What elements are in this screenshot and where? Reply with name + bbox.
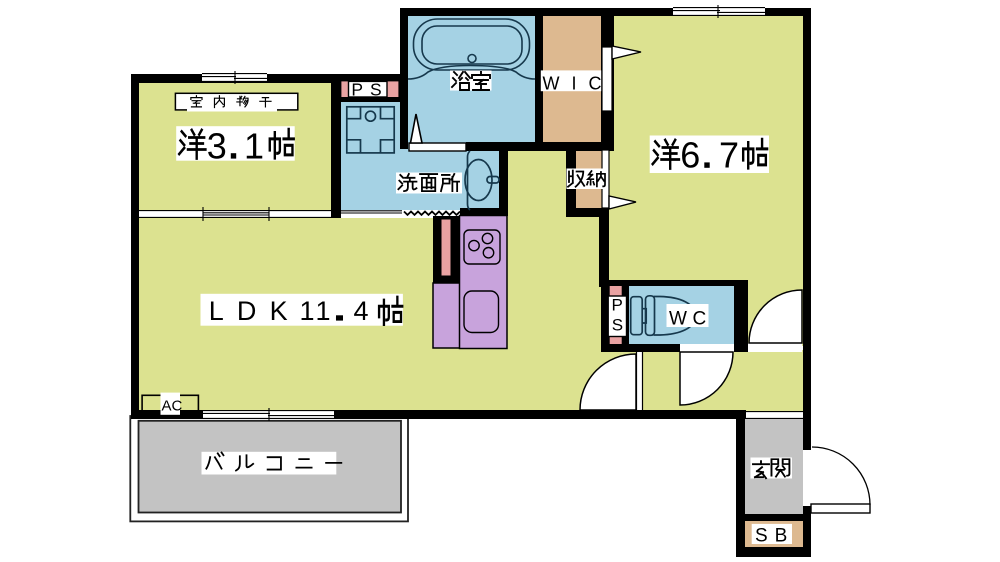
svg-text:WC: WC [669, 308, 712, 329]
svg-text:WIC: WIC [543, 74, 614, 94]
svg-text:1: 1 [244, 125, 264, 166]
svg-text:11.: 11. [300, 296, 345, 326]
svg-text:7: 7 [719, 135, 739, 176]
svg-text:AC: AC [162, 398, 183, 415]
svg-text:4: 4 [354, 296, 369, 326]
svg-text:P: P [612, 295, 623, 314]
svg-text:6.: 6. [680, 135, 712, 176]
svg-text:S: S [612, 315, 623, 334]
svg-text:LDK: LDK [209, 296, 301, 326]
svg-text:SB: SB [755, 526, 794, 547]
svg-text:3.: 3. [207, 125, 239, 166]
svg-text:PS: PS [351, 79, 388, 99]
